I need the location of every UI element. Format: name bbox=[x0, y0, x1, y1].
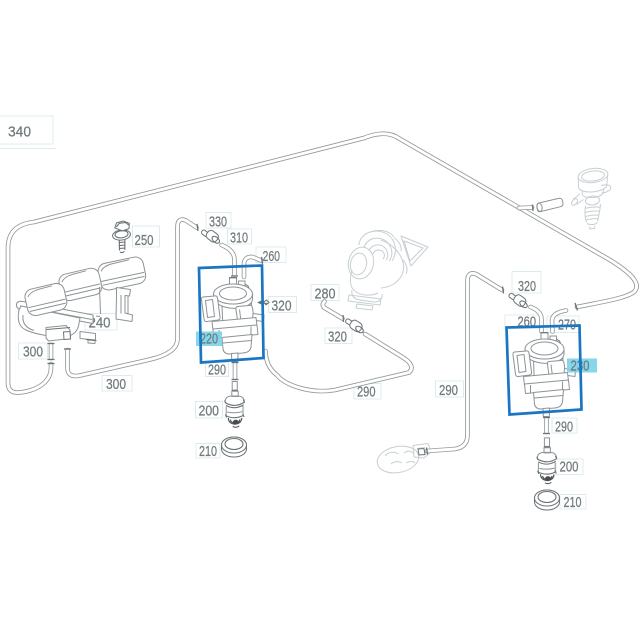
svg-text:200: 200 bbox=[560, 460, 579, 476]
svg-text:320: 320 bbox=[518, 279, 536, 295]
svg-text:300: 300 bbox=[106, 377, 126, 393]
svg-text:290: 290 bbox=[357, 385, 376, 401]
svg-text:310: 310 bbox=[230, 231, 248, 247]
svg-text:200: 200 bbox=[199, 404, 220, 420]
svg-text:340: 340 bbox=[8, 125, 31, 141]
svg-text:290: 290 bbox=[555, 420, 573, 436]
svg-text:220: 220 bbox=[200, 332, 218, 348]
svg-text:320: 320 bbox=[328, 330, 347, 346]
svg-text:250: 250 bbox=[135, 233, 154, 249]
svg-text:320: 320 bbox=[272, 299, 292, 315]
svg-text:300: 300 bbox=[23, 345, 43, 361]
svg-text:330: 330 bbox=[209, 215, 227, 231]
svg-text:210: 210 bbox=[199, 444, 217, 460]
svg-text:290: 290 bbox=[208, 363, 226, 379]
svg-text:290: 290 bbox=[439, 383, 458, 399]
svg-text:260: 260 bbox=[263, 249, 281, 265]
svg-text:210: 210 bbox=[564, 495, 582, 511]
